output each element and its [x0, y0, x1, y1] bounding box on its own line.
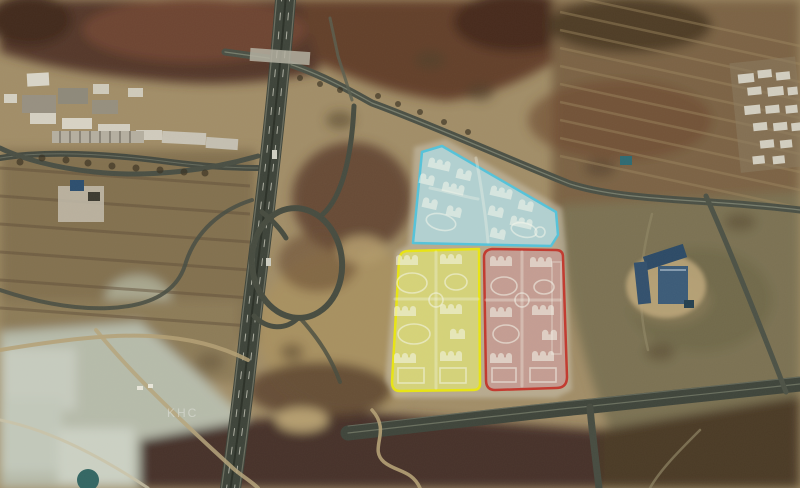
image-grain — [0, 0, 800, 488]
map-canvas: KHC — [0, 0, 800, 488]
satellite-map[interactable]: KHC — [0, 0, 800, 488]
